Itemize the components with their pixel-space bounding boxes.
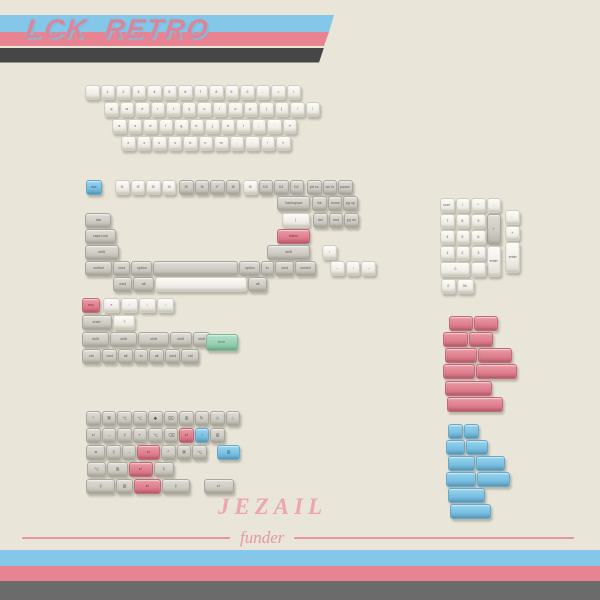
- keycap-r: r: [151, 102, 166, 117]
- keycap-0: 0: [441, 279, 456, 294]
- keycap-⇪: ⇪: [86, 479, 115, 494]
- keycap--: -: [487, 198, 502, 213]
- keycap-/: /: [261, 136, 276, 151]
- keycap-/: /: [290, 102, 305, 117]
- keycap-*: *: [471, 198, 486, 213]
- keycap-⌦: ⌦: [164, 411, 179, 426]
- keycap-q: q: [104, 102, 119, 117]
- keycap-☼: ☼: [121, 298, 138, 313]
- keycap-⇧: ⇧: [154, 462, 174, 477]
- keycap-↵: ↵: [129, 462, 153, 477]
- keycap-◔: ◔: [195, 428, 210, 443]
- keycap-e: e: [135, 102, 150, 117]
- keycap-alt: alt: [149, 349, 164, 364]
- keycap-shift: shift: [170, 332, 192, 347]
- tagline-line-left: [22, 537, 230, 539]
- keycap-↵: ↵: [204, 479, 234, 494]
- keycap-`: `: [85, 85, 100, 100]
- keycap-spacebar: [155, 277, 247, 292]
- keycap-♪: ♪: [139, 298, 156, 313]
- keycap-shift: shift: [138, 332, 169, 347]
- keycap-blank: [477, 472, 510, 487]
- keycap-4: 4: [147, 85, 162, 100]
- keycap-→: →: [361, 261, 376, 276]
- keycap-⌥: ⌥: [133, 411, 148, 426]
- keycap-4: 4: [440, 230, 455, 245]
- keycap-5: 5: [163, 85, 178, 100]
- keycap-⌂: ⌂: [226, 411, 241, 426]
- keycap-blank: [447, 397, 503, 412]
- keycap-[: [: [259, 102, 274, 117]
- keycap-☺: ☺: [157, 298, 174, 313]
- keycap--: -: [505, 210, 520, 225]
- keycap-shift: shift: [85, 245, 119, 260]
- keycap-blank: [446, 440, 465, 455]
- keycap-^: ^: [161, 445, 176, 460]
- keycap-↻: ↻: [195, 411, 210, 426]
- keycap-]: ]: [275, 102, 290, 117]
- keycap-f10: f10: [259, 180, 274, 195]
- keycap-6: 6: [178, 85, 193, 100]
- keycap-t: t: [166, 102, 181, 117]
- keycap-k: k: [221, 119, 236, 134]
- keycap-⊞: ⊞: [179, 411, 194, 426]
- keycap-alt: alt: [133, 277, 154, 292]
- keycap-1: 1: [101, 85, 116, 100]
- keycap-.: .: [471, 262, 486, 277]
- keycap-enter: enter: [505, 242, 520, 273]
- keycap-x: x: [137, 136, 152, 151]
- keycap-blank: [476, 456, 505, 471]
- keycap-j: j: [205, 119, 220, 134]
- keycap-f5: f5: [179, 180, 194, 195]
- keycap-↵: ↵: [137, 445, 160, 460]
- brand-tagline-row: funder: [22, 528, 574, 548]
- keycap-=: =: [271, 85, 286, 100]
- keycap-ins: ins: [312, 196, 327, 211]
- keycap-1: 1: [440, 246, 455, 261]
- keycap-⌫: ⌫: [164, 428, 179, 443]
- keycap-v: v: [168, 136, 183, 151]
- keycap-f6: f6: [195, 180, 210, 195]
- keycap-s: s: [128, 119, 143, 134]
- keycap-⌘: ⌘: [102, 411, 117, 426]
- keycap-blank: [466, 440, 488, 455]
- keycap-blank: [476, 364, 517, 379]
- keycap-del: del: [313, 213, 328, 228]
- keycap-blank: [443, 364, 475, 379]
- keycap-cmd: cmd: [102, 349, 117, 364]
- brand-tagline: funder: [230, 528, 294, 548]
- keycap-↵: ↵: [86, 428, 101, 443]
- keycap-f4: f4: [162, 180, 177, 195]
- keycap-⊞: ⊞: [217, 445, 240, 460]
- keycap-': ': [267, 119, 282, 134]
- keycap-blank: [478, 348, 512, 363]
- keycap-caps lock: caps lock: [85, 229, 116, 244]
- keycap-blank: [446, 472, 476, 487]
- keycap-f11: f11: [274, 180, 289, 195]
- keycap-blank: [448, 424, 463, 439]
- keycap-p: p: [244, 102, 259, 117]
- keycap-↑: ↑: [322, 245, 337, 260]
- keycap-⇧: ⇧: [117, 428, 132, 443]
- keycap-option: option: [239, 261, 260, 276]
- keycap-esc: esc: [86, 180, 102, 195]
- keycap-enter: enter: [487, 246, 502, 277]
- keycap-8: 8: [456, 214, 471, 229]
- keycap-⌥: ⌥: [87, 462, 106, 477]
- keycap-9: 9: [471, 214, 486, 229]
- keycap-←: ←: [330, 261, 345, 276]
- keycap-pg up: pg up: [343, 196, 358, 211]
- keycap-0: 0: [440, 262, 470, 277]
- bottom-stripe-blue: [0, 550, 600, 566]
- keycap-3: 3: [132, 85, 147, 100]
- keycap-cmd: cmd: [113, 261, 130, 276]
- keycap-⇧: ⇧: [276, 136, 291, 151]
- keycap-0: 0: [240, 85, 255, 100]
- keycap-y: y: [182, 102, 197, 117]
- keycap-home: home: [328, 196, 343, 211]
- keycap-blank: [443, 332, 468, 347]
- keycap-c: c: [152, 136, 167, 151]
- keycap-z: z: [121, 136, 136, 151]
- keycap-f7: f7: [210, 180, 225, 195]
- keycap-⊞: ⊞: [107, 462, 128, 477]
- keycap-⌥: ⌥: [117, 411, 132, 426]
- bottom-stripe-pink: [0, 566, 600, 581]
- keycap-blank: [469, 332, 493, 347]
- keycap-f2: f2: [131, 180, 146, 195]
- keycap-esc: esc: [82, 298, 100, 313]
- keycap-|: |: [282, 213, 310, 228]
- keycap-spacebar: [153, 261, 238, 276]
- bottom-stripe-dark: [0, 581, 600, 600]
- keycap-cmd: cmd: [165, 349, 180, 364]
- keycap-9: 9: [225, 85, 240, 100]
- keycap-fn: fn: [134, 349, 148, 364]
- keycap-→: →: [102, 428, 117, 443]
- keycap-blank: [449, 316, 473, 331]
- keycap-⊞: ⊞: [116, 479, 133, 494]
- keycap-→: →: [122, 445, 137, 460]
- keycap-6: 6: [471, 230, 486, 245]
- keycap-d: d: [143, 119, 158, 134]
- keycap-backspace: backspace: [277, 196, 310, 211]
- keycap-ctrl: ctrl: [82, 349, 101, 364]
- keycap-pause: pause: [338, 180, 353, 195]
- keycap-blank: [464, 424, 479, 439]
- keycap-,: ,: [230, 136, 245, 151]
- keycap-⊞: ⊞: [210, 428, 225, 443]
- keycap-fn: fn: [261, 261, 274, 276]
- keycap-cmd: cmd: [113, 277, 132, 292]
- brand-name: JEZAIL: [0, 494, 545, 520]
- keycap-m: m: [214, 136, 229, 151]
- keycap-;: ;: [252, 119, 267, 134]
- keycap-⌥: ⌥: [192, 445, 207, 460]
- keycap-prt sc: prt sc: [307, 180, 322, 195]
- keycap-control: control: [295, 261, 316, 276]
- keycap-tab: tab: [85, 213, 111, 228]
- keycap-alt: alt: [118, 349, 133, 364]
- keycap-w: w: [120, 102, 135, 117]
- keycap-control: control: [85, 261, 112, 276]
- keycap-o: o: [228, 102, 243, 117]
- keycap-5: 5: [456, 230, 471, 245]
- keycap-00: 00: [457, 279, 474, 294]
- keycap-♥: ♥: [103, 298, 120, 313]
- keycap-b: b: [183, 136, 198, 151]
- keycap-a: a: [112, 119, 127, 134]
- keycap-.: .: [245, 136, 260, 151]
- keycap-f3: f3: [146, 180, 161, 195]
- tagline-line-right: [294, 537, 574, 539]
- keycap-\: \: [287, 85, 302, 100]
- keycap-n: n: [199, 136, 214, 151]
- keycap-f12: f12: [290, 180, 305, 195]
- keycap-blank: [474, 316, 498, 331]
- keycap-end: end: [329, 213, 344, 228]
- keycap-↵: ↵: [134, 479, 161, 494]
- keycap-+: +: [487, 214, 502, 245]
- keycap-\: \: [306, 102, 321, 117]
- keycap-shift: shift: [267, 245, 310, 260]
- keycap-+: +: [133, 428, 148, 443]
- top-stripe-dark: [0, 48, 324, 63]
- keycap-7: 7: [194, 85, 209, 100]
- keycap-◇: ◇: [210, 411, 225, 426]
- keycap-/: /: [456, 198, 471, 213]
- keycap-↵: ↵: [283, 119, 298, 134]
- keycap-f: f: [159, 119, 174, 134]
- keycap-2: 2: [456, 246, 471, 261]
- keycap-love: love: [206, 334, 238, 351]
- keycap-blank: [445, 348, 477, 363]
- keycap-3: 3: [471, 246, 486, 261]
- keycap-l: l: [236, 119, 251, 134]
- keycap-◆: ◆: [148, 411, 163, 426]
- keycap-return: return: [277, 229, 310, 244]
- keycap-blank: [448, 456, 475, 471]
- keycap-h: h: [190, 119, 205, 134]
- keycap-⌘: ⌘: [177, 445, 192, 460]
- keycap-↓: ↓: [346, 261, 361, 276]
- keycap-alt: alt: [248, 277, 267, 292]
- keycap-i: i: [213, 102, 228, 117]
- keycap--: -: [256, 85, 271, 100]
- keycap-f9: f9: [243, 180, 258, 195]
- keycap-f1: f1: [115, 180, 130, 195]
- logo-text: LCK RETRO: [24, 14, 212, 45]
- keycap-scr lk: scr lk: [323, 180, 338, 195]
- keycap-⇧: ⇧: [106, 445, 121, 460]
- keycap-num: num: [440, 198, 455, 213]
- keycap-pg dn: pg dn: [344, 213, 359, 228]
- keycap-⌥: ⌥: [148, 428, 163, 443]
- keycap-shift: shift: [110, 332, 137, 347]
- keycap-g: g: [174, 119, 189, 134]
- keycap-?: ?: [113, 315, 135, 330]
- keycap-shift: shift: [82, 332, 109, 347]
- keycap-u: u: [197, 102, 212, 117]
- keycap-≡: ≡: [86, 445, 105, 460]
- keycap-↵: ↵: [179, 428, 194, 443]
- keycap-blank: [445, 381, 492, 396]
- keycap-7: 7: [440, 214, 455, 229]
- keycap-2: 2: [116, 85, 131, 100]
- keycap-ctrl: ctrl: [181, 349, 199, 364]
- keycap-f8: f8: [226, 180, 241, 195]
- keycap-⇧: ⇧: [162, 479, 190, 494]
- keycap-cmd: cmd: [275, 261, 294, 276]
- keycap-enter: enter: [82, 315, 112, 330]
- keycap-8: 8: [209, 85, 224, 100]
- keycap-option: option: [131, 261, 152, 276]
- keycap-^: ^: [86, 411, 101, 426]
- keycap-product-sheet: LCK RETRO `1234567890-=\qwertyuiop[]/\as…: [0, 0, 600, 600]
- keycap-+: +: [505, 226, 520, 241]
